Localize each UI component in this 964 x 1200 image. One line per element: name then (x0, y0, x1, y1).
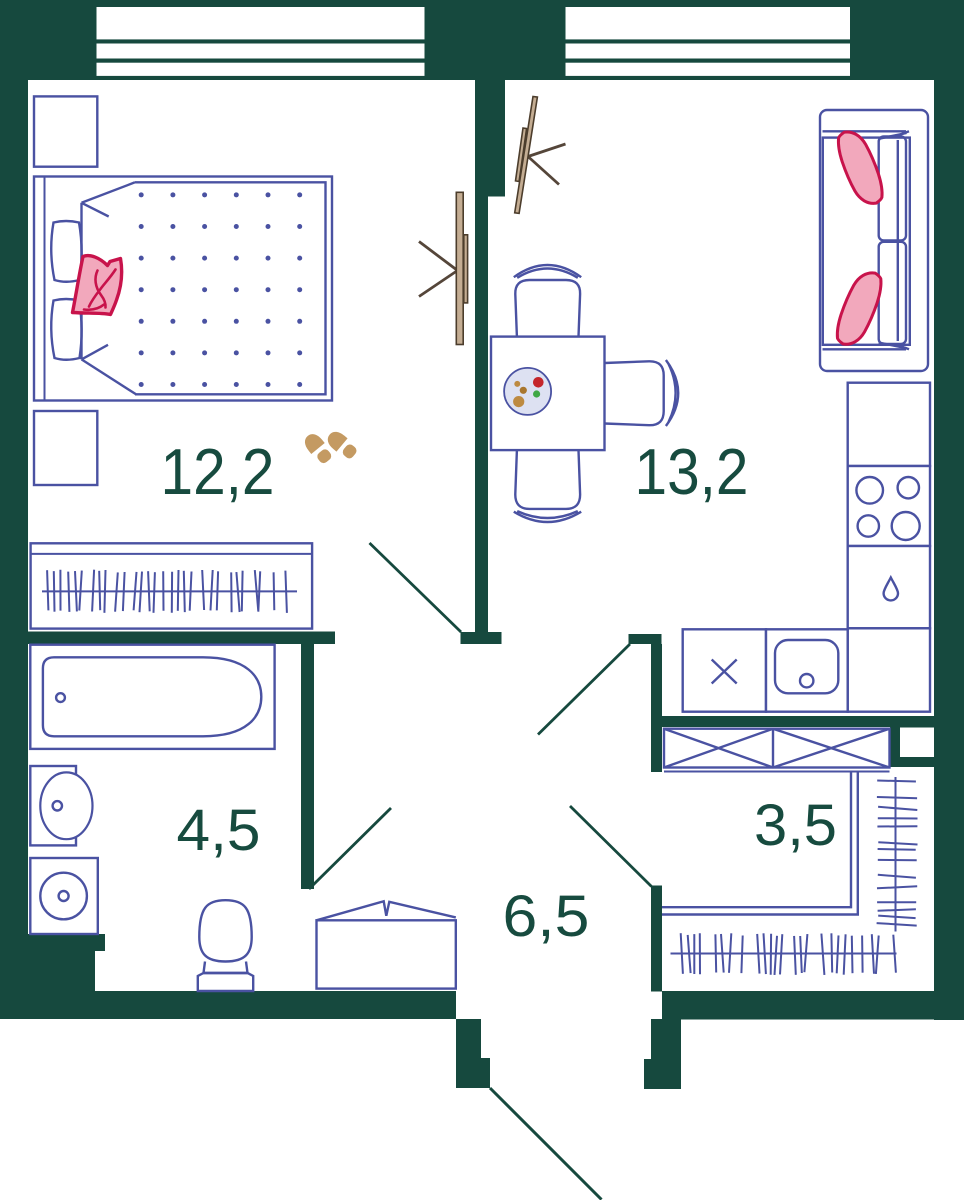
svg-text:13,2: 13,2 (635, 435, 749, 508)
svg-text:6,5: 6,5 (503, 884, 590, 949)
svg-text:3,5: 3,5 (754, 793, 837, 858)
svg-text:4,5: 4,5 (177, 798, 261, 863)
svg-text:12,2: 12,2 (161, 435, 275, 508)
